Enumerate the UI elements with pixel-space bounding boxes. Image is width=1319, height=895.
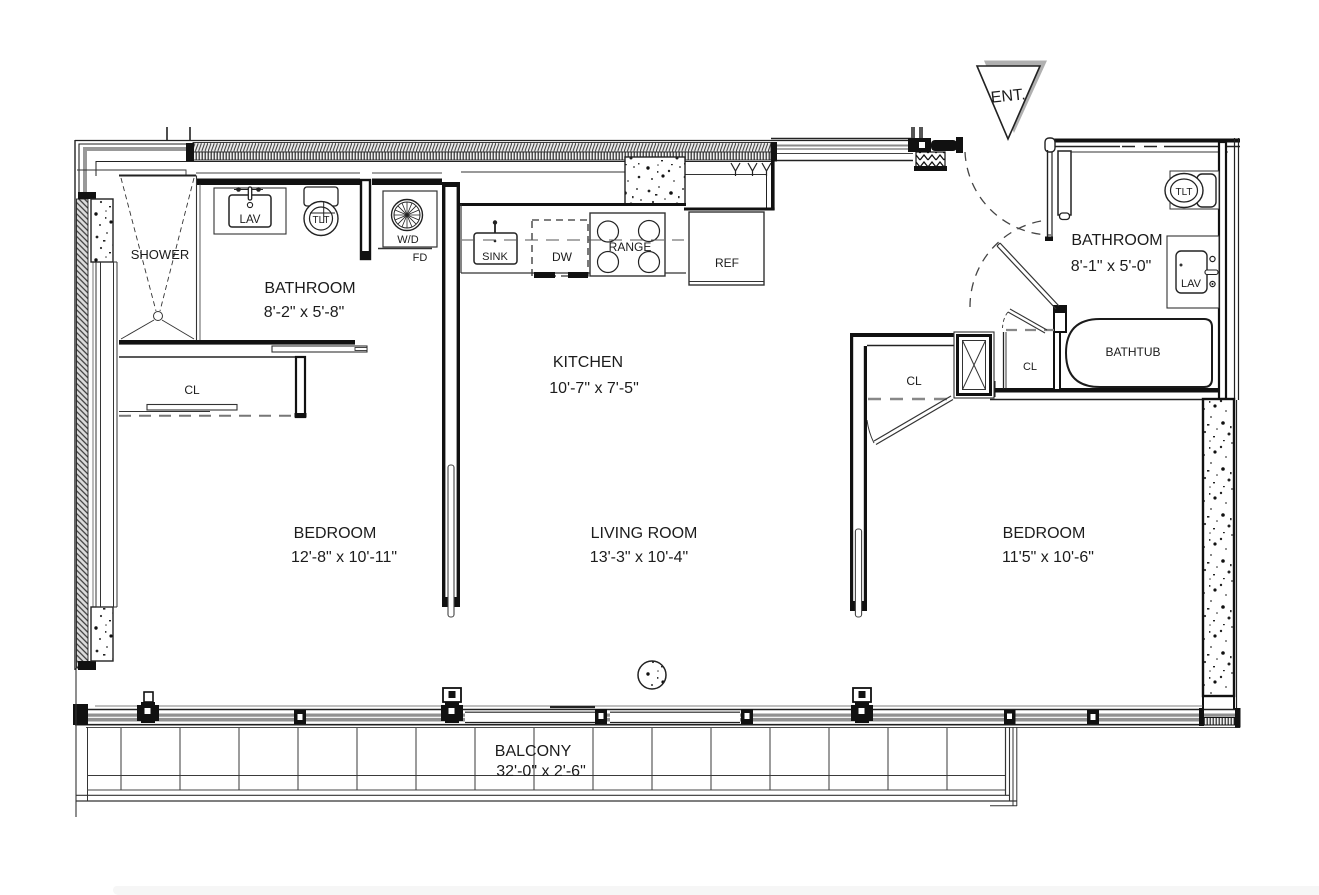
svg-text:SHOWER: SHOWER <box>131 247 190 262</box>
svg-text:ENT.: ENT. <box>990 86 1026 107</box>
svg-text:12'-8" x 10'-11": 12'-8" x 10'-11" <box>291 549 397 566</box>
svg-text:CL: CL <box>906 374 922 388</box>
svg-text:W/D: W/D <box>397 234 418 246</box>
svg-text:DW: DW <box>552 250 573 264</box>
svg-text:FD: FD <box>413 252 428 264</box>
svg-text:8'-1" x 5'-0": 8'-1" x 5'-0" <box>1071 258 1152 275</box>
svg-text:LAV: LAV <box>1181 278 1202 290</box>
svg-text:10'-7" x 7'-5": 10'-7" x 7'-5" <box>549 380 639 397</box>
svg-text:BALCONY: BALCONY <box>495 743 572 760</box>
svg-text:RANGE: RANGE <box>609 240 652 254</box>
svg-text:LAV: LAV <box>240 214 261 226</box>
svg-text:32'-0" x 2'-6": 32'-0" x 2'-6" <box>496 763 586 780</box>
svg-text:BATHTUB: BATHTUB <box>1105 345 1160 359</box>
svg-text:KITCHEN: KITCHEN <box>553 354 623 371</box>
svg-text:BATHROOM: BATHROOM <box>264 280 355 297</box>
svg-text:TLT: TLT <box>1175 187 1192 198</box>
svg-text:11'5" x 10'-6": 11'5" x 10'-6" <box>1002 549 1094 566</box>
svg-text:CL: CL <box>1023 361 1037 373</box>
svg-text:BEDROOM: BEDROOM <box>1003 525 1086 542</box>
svg-text:REF: REF <box>715 256 739 270</box>
svg-text:CL: CL <box>184 383 200 397</box>
svg-text:TLT: TLT <box>312 215 329 226</box>
svg-text:BATHROOM: BATHROOM <box>1071 232 1162 249</box>
svg-text:8'-2" x 5'-8": 8'-2" x 5'-8" <box>264 304 345 321</box>
svg-text:LIVING ROOM: LIVING ROOM <box>591 525 698 542</box>
svg-text:BEDROOM: BEDROOM <box>294 525 377 542</box>
svg-text:SINK: SINK <box>482 251 508 263</box>
svg-text:13'-3" x 10'-4": 13'-3" x 10'-4" <box>590 549 688 566</box>
